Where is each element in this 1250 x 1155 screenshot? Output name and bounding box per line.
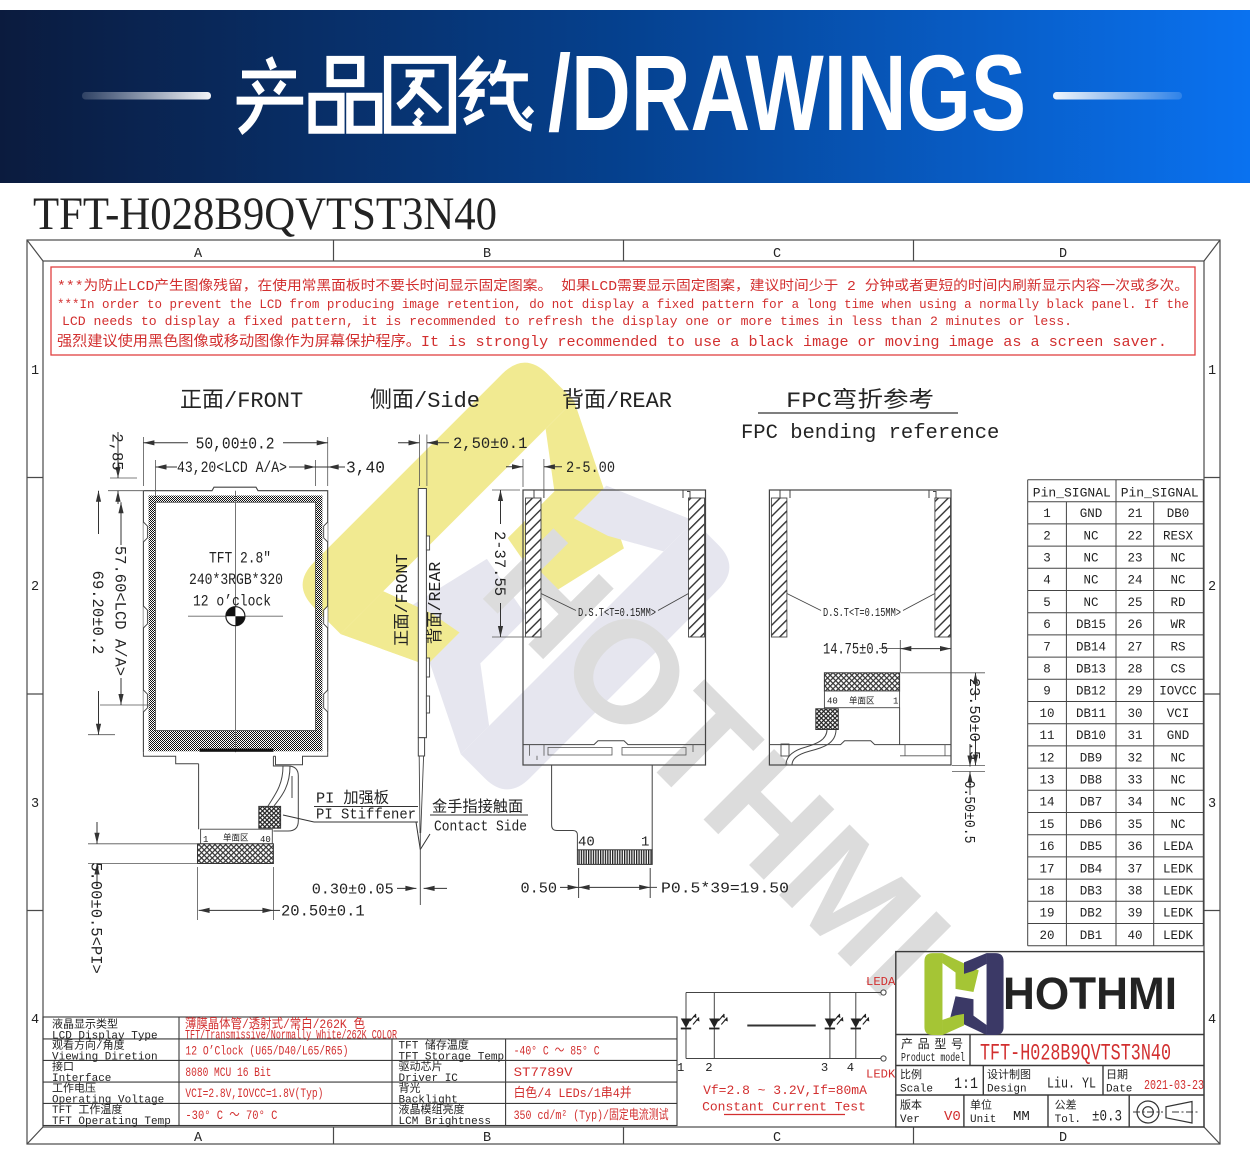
- svg-text:D: D: [1059, 247, 1067, 262]
- svg-text:版本: 版本: [900, 1098, 922, 1113]
- svg-text:26: 26: [1127, 618, 1142, 632]
- svg-text:单位: 单位: [970, 1098, 992, 1113]
- svg-text:23.50±0.5: 23.50±0.5: [965, 678, 983, 760]
- svg-text:2: 2: [1208, 580, 1216, 595]
- svg-text:18: 18: [1039, 885, 1054, 899]
- svg-text:21: 21: [1127, 507, 1142, 521]
- svg-text:24: 24: [1127, 574, 1142, 588]
- svg-text:Contact Side: Contact Side: [434, 818, 527, 836]
- svg-text:DB3: DB3: [1080, 885, 1103, 899]
- svg-text:8: 8: [1043, 663, 1051, 677]
- svg-text:RD: RD: [1170, 596, 1185, 610]
- svg-text:4: 4: [1043, 574, 1051, 588]
- svg-text:2,85: 2,85: [108, 433, 126, 470]
- svg-text:GND: GND: [1080, 507, 1103, 521]
- svg-text:LEDK: LEDK: [866, 1068, 896, 1082]
- svg-text:LEDK: LEDK: [1163, 907, 1194, 921]
- svg-text:LEDA: LEDA: [1163, 840, 1194, 854]
- svg-text:2: 2: [705, 1061, 712, 1075]
- svg-text:1: 1: [893, 697, 898, 707]
- svg-text:单面区: 单面区: [223, 833, 249, 844]
- svg-text:14: 14: [1039, 796, 1054, 810]
- svg-text:Liu. YL: Liu. YL: [1047, 1077, 1096, 1093]
- svg-text:7: 7: [1043, 640, 1051, 654]
- svg-text:2: 2: [1043, 529, 1051, 543]
- svg-text:P0.5*39=19.50: P0.5*39=19.50: [661, 879, 789, 897]
- svg-text:1:1: 1:1: [954, 1075, 978, 1093]
- svg-text:3: 3: [31, 797, 39, 812]
- svg-text:6: 6: [1043, 618, 1051, 632]
- svg-text:B: B: [483, 247, 491, 262]
- svg-text:DB12: DB12: [1076, 685, 1106, 699]
- svg-text:C: C: [773, 1131, 781, 1146]
- svg-text:1: 1: [641, 835, 649, 851]
- svg-text:TFT/Transmissive/Normally Whit: TFT/Transmissive/Normally White/262K COL…: [185, 1028, 397, 1043]
- svg-text:观看方向/角度: 观看方向/角度: [52, 1038, 125, 1053]
- svg-text:D.S.T<T=0.15MM>: D.S.T<T=0.15MM>: [578, 606, 656, 620]
- svg-text:Ver: Ver: [900, 1114, 920, 1126]
- svg-text:LEDA: LEDA: [866, 975, 896, 989]
- svg-text:Tol.: Tol.: [1055, 1114, 1081, 1126]
- svg-text:1: 1: [1043, 507, 1051, 521]
- svg-text:NC: NC: [1170, 751, 1185, 765]
- svg-text:IOVCC: IOVCC: [1159, 685, 1197, 699]
- svg-text:36: 36: [1127, 840, 1142, 854]
- svg-text:比例: 比例: [900, 1067, 922, 1082]
- svg-text:1: 1: [31, 364, 39, 379]
- svg-text:31: 31: [1127, 729, 1142, 743]
- svg-text:0.50±0.5: 0.50±0.5: [960, 781, 978, 844]
- svg-text:Unit: Unit: [970, 1114, 996, 1126]
- svg-text:4: 4: [31, 1013, 39, 1028]
- svg-text:9: 9: [1043, 685, 1051, 699]
- svg-text:37: 37: [1127, 862, 1142, 876]
- svg-text:27: 27: [1127, 640, 1142, 654]
- svg-text:CS: CS: [1170, 663, 1185, 677]
- svg-text:5: 5: [1043, 596, 1051, 610]
- svg-text:LCD needs to display a fixed p: LCD needs to display a fixed pattern, it…: [62, 314, 1072, 329]
- svg-text:A: A: [194, 1131, 203, 1146]
- svg-text:DB11: DB11: [1076, 707, 1106, 721]
- svg-text:PI Stiffener: PI Stiffener: [316, 806, 416, 824]
- svg-text:TFT Operating Temp: TFT Operating Temp: [52, 1116, 171, 1128]
- svg-text:NC: NC: [1083, 529, 1098, 543]
- svg-text:8080 MCU 16 Bit: 8080 MCU 16 Bit: [185, 1065, 271, 1080]
- svg-text:2: 2: [31, 580, 39, 595]
- svg-text:单面区: 单面区: [849, 696, 875, 707]
- svg-text:RS: RS: [1170, 640, 1185, 654]
- svg-text:-30° C ～ 70° C: -30° C ～ 70° C: [185, 1108, 277, 1123]
- svg-text:25: 25: [1127, 596, 1142, 610]
- svg-text:20.50±0.1: 20.50±0.1: [281, 902, 365, 920]
- svg-text:2021-03-23: 2021-03-23: [1144, 1079, 1204, 1094]
- svg-text:NC: NC: [1083, 574, 1098, 588]
- svg-text:DB4: DB4: [1080, 862, 1103, 876]
- svg-text:/DRAWINGS: /DRAWINGS: [548, 32, 1026, 153]
- svg-text:32: 32: [1127, 751, 1142, 765]
- svg-text:0.50: 0.50: [521, 879, 557, 897]
- svg-text:28: 28: [1127, 663, 1142, 677]
- svg-text:19: 19: [1039, 907, 1054, 921]
- svg-text:V0: V0: [944, 1109, 961, 1125]
- svg-text:DB9: DB9: [1080, 751, 1103, 765]
- svg-text:DB2: DB2: [1080, 907, 1103, 921]
- svg-text:Pin_SIGNAL: Pin_SIGNAL: [1121, 486, 1199, 501]
- svg-text:4: 4: [1208, 1013, 1216, 1028]
- svg-text:57.60<LCD A/A>: 57.60<LCD A/A>: [111, 546, 129, 676]
- svg-text:RESX: RESX: [1163, 529, 1194, 543]
- svg-text:Product model: Product model: [901, 1052, 965, 1065]
- svg-text:11: 11: [1039, 729, 1054, 743]
- svg-text:-40° C ～ 85° C: -40° C ～ 85° C: [514, 1044, 600, 1059]
- svg-text:***为防止LCD产生图像残留，在使用常黑面板时不要长时间显: ***为防止LCD产生图像残留，在使用常黑面板时不要长时间显示固定图案。 如果L…: [57, 277, 1189, 295]
- svg-text:NC: NC: [1170, 552, 1185, 566]
- svg-text:DB0: DB0: [1167, 507, 1190, 521]
- svg-text:LCM Brightness: LCM Brightness: [399, 1116, 491, 1128]
- svg-text:3: 3: [821, 1061, 828, 1075]
- svg-text:WR: WR: [1170, 618, 1186, 632]
- svg-text:背面/REAR: 背面/REAR: [425, 562, 445, 645]
- svg-text:2-5.00: 2-5.00: [566, 459, 615, 477]
- svg-text:TFT 储存温度: TFT 储存温度: [399, 1038, 469, 1053]
- svg-text:LEDK: LEDK: [1163, 862, 1194, 876]
- svg-text:23: 23: [1127, 552, 1142, 566]
- svg-text:14.75±0.5: 14.75±0.5: [823, 641, 888, 659]
- svg-text:LEDK: LEDK: [1163, 885, 1194, 899]
- svg-text:17: 17: [1039, 862, 1054, 876]
- svg-text:22: 22: [1127, 529, 1142, 543]
- svg-text:接口: 接口: [52, 1060, 74, 1074]
- svg-text:工作电压: 工作电压: [52, 1082, 96, 1096]
- svg-text:Pin_SIGNAL: Pin_SIGNAL: [1033, 486, 1111, 501]
- svg-text:12 O’Clock (U65/D40/L65/R65): 12 O’Clock (U65/D40/L65/R65): [185, 1044, 348, 1059]
- svg-text:4: 4: [847, 1061, 854, 1075]
- svg-text:13: 13: [1039, 774, 1054, 788]
- svg-text:43,20<LCD A/A>: 43,20<LCD A/A>: [177, 459, 287, 477]
- svg-text:FPC弯折参考: FPC弯折参考: [786, 388, 934, 414]
- svg-text:69.20±0.2: 69.20±0.2: [88, 571, 106, 655]
- svg-text:33: 33: [1127, 774, 1142, 788]
- svg-text:50,00±0.2: 50,00±0.2: [196, 436, 275, 455]
- svg-text:±0.3: ±0.3: [1092, 1108, 1122, 1126]
- svg-text:0.30±0.05: 0.30±0.05: [312, 880, 394, 898]
- svg-text:2,50±0.1: 2,50±0.1: [453, 435, 527, 453]
- svg-text:15: 15: [1039, 818, 1054, 832]
- svg-text:DB6: DB6: [1080, 818, 1103, 832]
- svg-text:TFT 工作温度: TFT 工作温度: [52, 1102, 122, 1117]
- svg-text:350 cd/m² (Typ)/固定电流测试: 350 cd/m² (Typ)/固定电流测试: [514, 1108, 669, 1123]
- svg-text:NC: NC: [1083, 596, 1098, 610]
- svg-text:DB1: DB1: [1080, 929, 1103, 943]
- svg-text:Scale: Scale: [900, 1084, 933, 1096]
- svg-text:DB15: DB15: [1076, 618, 1106, 632]
- svg-text:正面/FRONT: 正面/FRONT: [393, 554, 412, 647]
- svg-text:16: 16: [1039, 840, 1054, 854]
- svg-text:29: 29: [1127, 685, 1142, 699]
- svg-text:DB10: DB10: [1076, 729, 1106, 743]
- svg-text:MM: MM: [1013, 1109, 1030, 1125]
- svg-text:FPC bending reference: FPC bending reference: [741, 422, 999, 445]
- svg-text:30: 30: [1127, 707, 1142, 721]
- svg-text:Date: Date: [1106, 1084, 1132, 1096]
- svg-text:Design: Design: [987, 1084, 1027, 1096]
- svg-text:Vf=2.8 ~ 3.2V,If=80mA: Vf=2.8 ~ 3.2V,If=80mA: [703, 1083, 867, 1098]
- svg-text:240*3RGB*320: 240*3RGB*320: [189, 571, 283, 589]
- svg-text:TFT 2.8″: TFT 2.8″: [209, 550, 271, 568]
- svg-text:3: 3: [1043, 552, 1051, 566]
- svg-text:ST7789V: ST7789V: [514, 1065, 573, 1080]
- svg-text:白色/4 LEDs/1串4并: 白色/4 LEDs/1串4并: [514, 1085, 632, 1101]
- svg-text:VCI=2.8V,IOVCC=1.8V(Typ): VCI=2.8V,IOVCC=1.8V(Typ): [185, 1086, 323, 1101]
- svg-text:VCI: VCI: [1167, 707, 1190, 721]
- svg-text:设计制图: 设计制图: [987, 1068, 1031, 1082]
- svg-text:GND: GND: [1167, 729, 1190, 743]
- svg-text:1: 1: [677, 1061, 684, 1075]
- svg-text:TFT-H028B9QVTST3N40: TFT-H028B9QVTST3N40: [980, 1041, 1171, 1067]
- svg-text:DB13: DB13: [1076, 663, 1106, 677]
- svg-text:HOTHMI: HOTHMI: [1003, 968, 1177, 1019]
- svg-text:NC: NC: [1170, 796, 1185, 810]
- svg-text:D.S.T<T=0.15MM>: D.S.T<T=0.15MM>: [823, 606, 901, 620]
- svg-text:***In order to prevent the LCD: ***In order to prevent the LCD from prod…: [57, 297, 1189, 312]
- svg-text:C: C: [773, 247, 781, 262]
- svg-text:背面/REAR: 背面/REAR: [562, 388, 672, 414]
- svg-text:液晶模组亮度: 液晶模组亮度: [399, 1102, 465, 1117]
- svg-text:40: 40: [1127, 929, 1142, 943]
- svg-text:金手指接触面: 金手指接触面: [432, 799, 523, 817]
- svg-text:A: A: [194, 247, 203, 262]
- svg-text:液晶显示类型: 液晶显示类型: [52, 1017, 118, 1032]
- svg-text:12 o’clock: 12 o’clock: [193, 593, 271, 611]
- svg-text:NC: NC: [1083, 552, 1098, 566]
- svg-text:NC: NC: [1170, 774, 1185, 788]
- svg-text:DB7: DB7: [1080, 796, 1103, 810]
- svg-text:10: 10: [1039, 707, 1054, 721]
- svg-text:2-37.55: 2-37.55: [490, 531, 508, 596]
- svg-text:NC: NC: [1170, 574, 1185, 588]
- svg-text:驱动芯片: 驱动芯片: [399, 1059, 443, 1074]
- svg-text:B: B: [483, 1131, 491, 1146]
- svg-text:40: 40: [827, 697, 838, 707]
- svg-text:Constant Current Test: Constant Current Test: [702, 1100, 866, 1115]
- svg-text:DB14: DB14: [1076, 640, 1106, 654]
- svg-text:正面/FRONT: 正面/FRONT: [180, 389, 303, 414]
- svg-text:5.00±0.5<PI>: 5.00±0.5<PI>: [87, 862, 105, 974]
- svg-text:LEDK: LEDK: [1163, 929, 1194, 943]
- svg-text:12: 12: [1039, 751, 1054, 765]
- svg-text:3,40: 3,40: [346, 460, 385, 479]
- svg-text:40: 40: [578, 835, 595, 851]
- svg-text:公差: 公差: [1055, 1098, 1077, 1113]
- svg-text:20: 20: [1039, 929, 1054, 943]
- svg-text:日期: 日期: [1106, 1068, 1128, 1082]
- svg-text:3: 3: [1208, 797, 1216, 812]
- svg-text:背光: 背光: [399, 1081, 421, 1096]
- svg-text:38: 38: [1127, 885, 1142, 899]
- svg-text:DB5: DB5: [1080, 840, 1103, 854]
- svg-text:TFT-H028B9QVTST3N40: TFT-H028B9QVTST3N40: [33, 188, 497, 240]
- svg-text:D: D: [1059, 1131, 1067, 1146]
- svg-text:1: 1: [1208, 364, 1216, 379]
- svg-text:34: 34: [1127, 796, 1142, 810]
- svg-text:35: 35: [1127, 818, 1142, 832]
- svg-text:NC: NC: [1170, 818, 1185, 832]
- svg-text:DB8: DB8: [1080, 774, 1103, 788]
- svg-text:39: 39: [1127, 907, 1142, 921]
- svg-text:强烈建议使用黑色图像或移动图像作为屏幕保护程序。It is: 强烈建议使用黑色图像或移动图像作为屏幕保护程序。It is strongly r…: [57, 333, 1167, 351]
- svg-text:侧面/Side: 侧面/Side: [370, 388, 480, 414]
